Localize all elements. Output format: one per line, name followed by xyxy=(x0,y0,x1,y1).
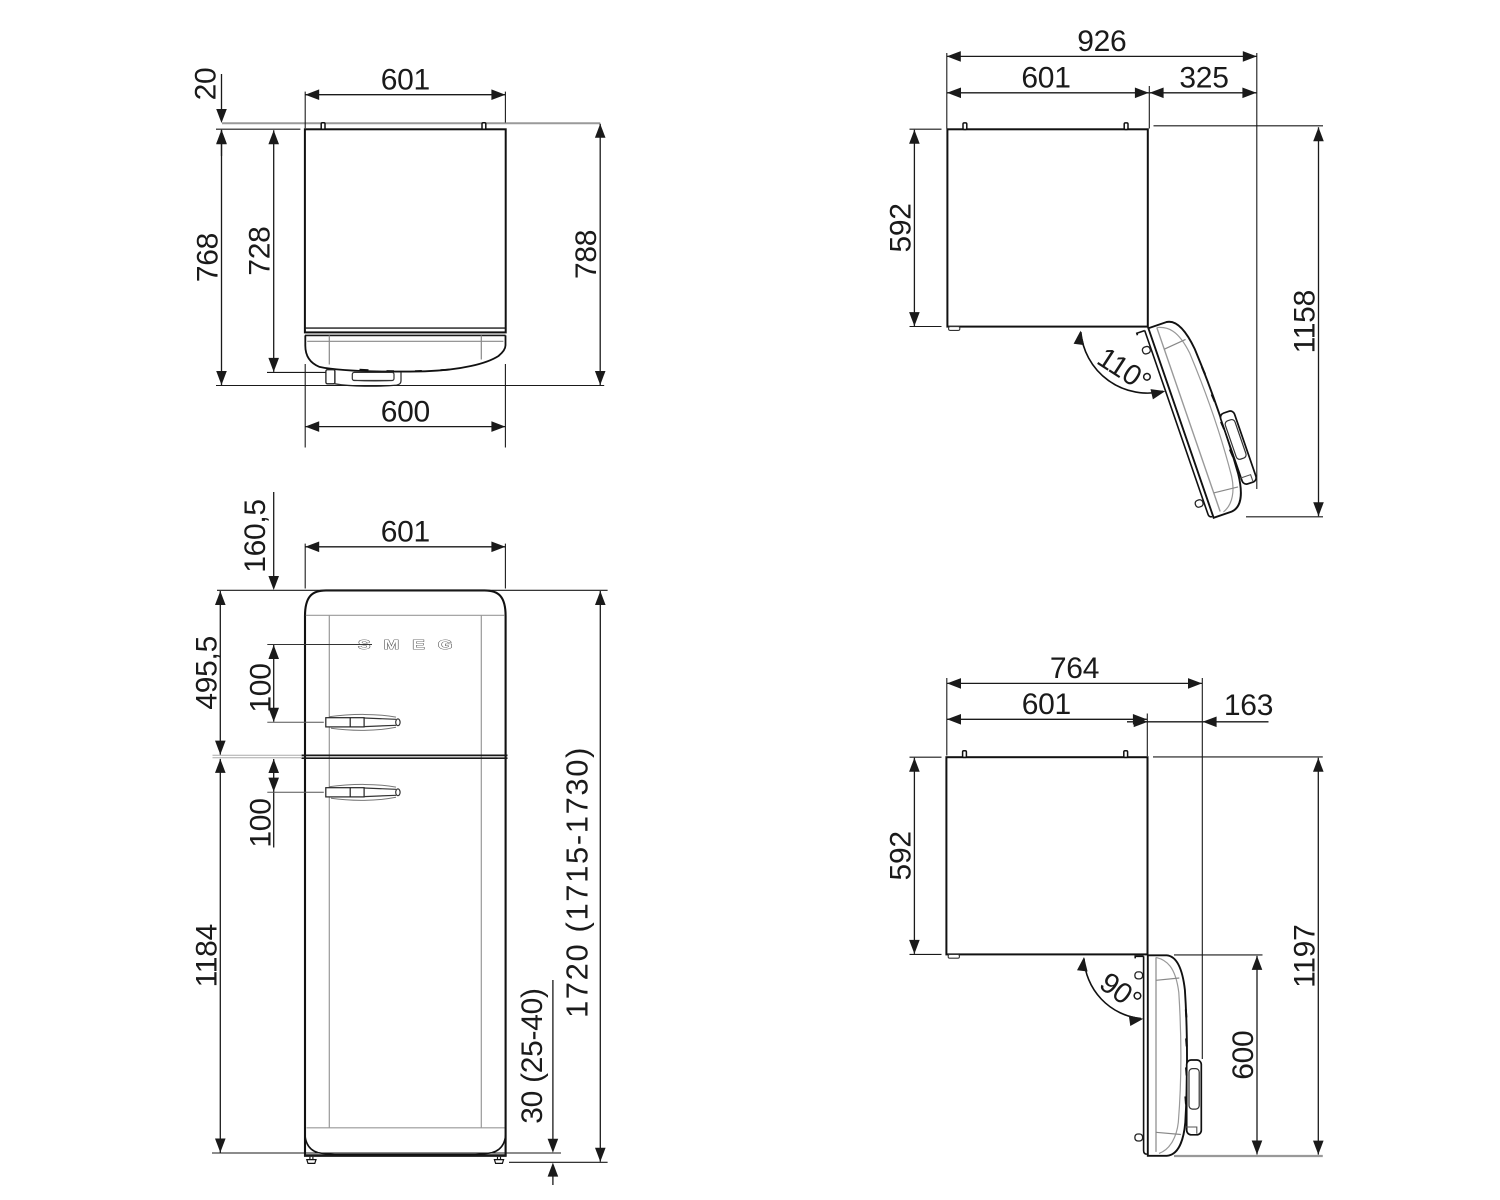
svg-text:163: 163 xyxy=(1224,689,1273,722)
svg-text:495,5: 495,5 xyxy=(190,636,223,710)
svg-text:600: 600 xyxy=(381,395,430,428)
svg-text:600: 600 xyxy=(1227,1031,1260,1080)
svg-text:592: 592 xyxy=(884,203,917,252)
svg-text:788: 788 xyxy=(570,230,603,279)
svg-text:601: 601 xyxy=(381,516,430,549)
svg-text:768: 768 xyxy=(192,233,225,282)
svg-text:601: 601 xyxy=(1021,62,1070,95)
svg-text:1720 (1715-1730): 1720 (1715-1730) xyxy=(560,746,595,1018)
svg-text:601: 601 xyxy=(1022,688,1071,721)
svg-text:SMEG: SMEG xyxy=(358,639,466,652)
svg-text:1197: 1197 xyxy=(1288,925,1321,988)
svg-text:100: 100 xyxy=(244,663,277,712)
svg-text:764: 764 xyxy=(1050,652,1099,685)
svg-text:592: 592 xyxy=(884,831,917,880)
svg-text:728: 728 xyxy=(244,226,277,275)
svg-text:1158: 1158 xyxy=(1289,290,1322,353)
svg-text:1184: 1184 xyxy=(190,924,223,987)
svg-text:325: 325 xyxy=(1179,62,1228,95)
svg-text:601: 601 xyxy=(381,64,430,97)
svg-text:100: 100 xyxy=(244,798,277,847)
svg-text:20: 20 xyxy=(190,68,223,101)
svg-text:30 (25-40): 30 (25-40) xyxy=(516,988,549,1123)
svg-text:926: 926 xyxy=(1077,25,1126,58)
svg-text:160,5: 160,5 xyxy=(239,499,272,573)
